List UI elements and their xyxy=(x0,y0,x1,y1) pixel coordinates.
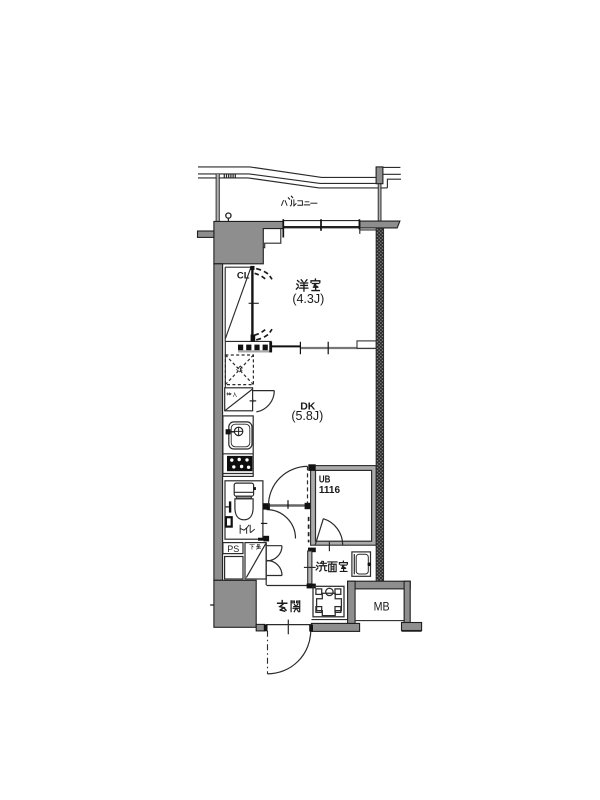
svg-text:UB: UB xyxy=(319,473,331,485)
svg-text:PS: PS xyxy=(227,544,239,554)
svg-text:(4.3J): (4.3J) xyxy=(292,292,324,306)
svg-text:1116: 1116 xyxy=(319,485,341,496)
svg-text:CL: CL xyxy=(237,270,250,281)
svg-text:MB: MB xyxy=(374,601,390,613)
svg-text:(5.8J): (5.8J) xyxy=(291,409,323,423)
